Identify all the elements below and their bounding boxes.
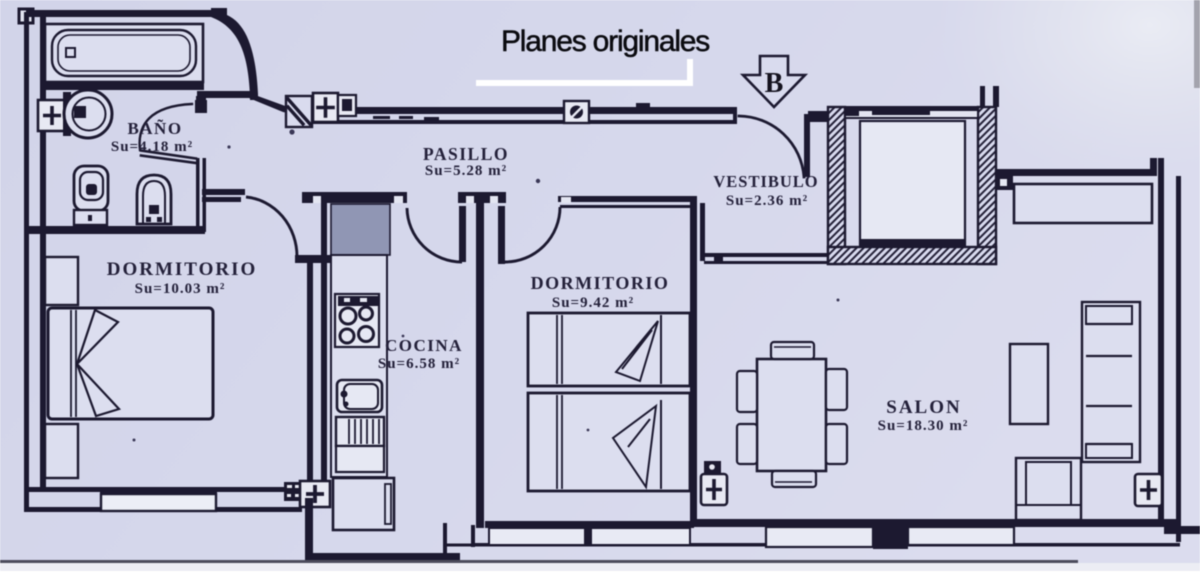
svg-text:DORMITORIO: DORMITORIO (107, 259, 258, 280)
svg-text:Planes originales: Planes originales (501, 25, 709, 58)
svg-text:Su=5.28 m²: Su=5.28 m² (425, 163, 507, 179)
svg-text:B: B (765, 68, 784, 99)
svg-text:Su=9.42 m²: Su=9.42 m² (552, 295, 634, 311)
svg-text:Su=10.03 m²: Su=10.03 m² (135, 281, 226, 297)
svg-text:SALON: SALON (886, 397, 961, 418)
svg-text:Su=4.18 m²: Su=4.18 m² (111, 139, 193, 155)
svg-text:BAÑO: BAÑO (127, 119, 182, 138)
svg-text:Su=6.58 m²: Su=6.58 m² (378, 356, 460, 372)
svg-text:Su=2.36 m²: Su=2.36 m² (726, 193, 808, 209)
svg-text:Su=18.30 m²: Su=18.30 m² (878, 418, 969, 434)
svg-text:COCINA: COCINA (385, 336, 463, 355)
svg-text:VESTIBULO: VESTIBULO (713, 172, 818, 191)
svg-text:DORMITORIO: DORMITORIO (531, 273, 670, 293)
svg-text:PASILLO: PASILLO (423, 144, 509, 164)
